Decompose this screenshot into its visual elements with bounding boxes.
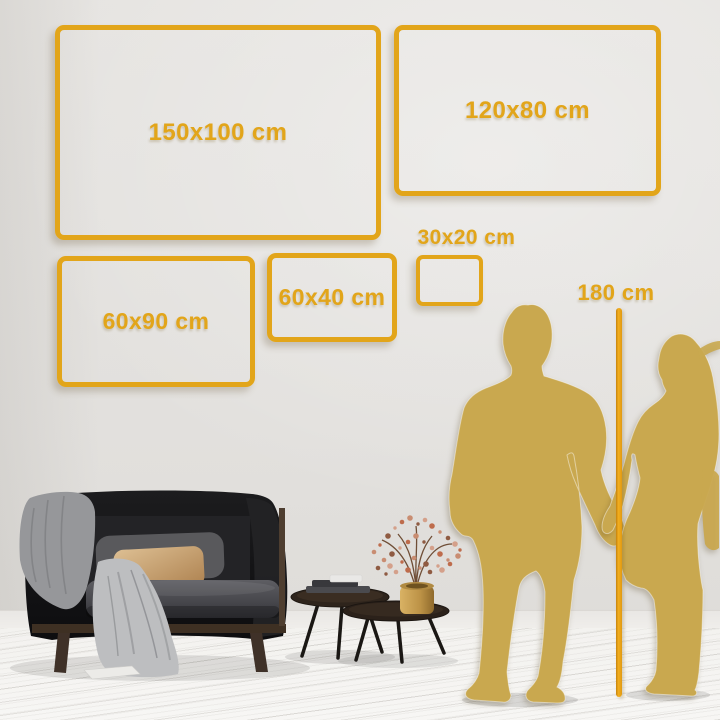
height-marker-label-wrap: 180 cm bbox=[560, 280, 672, 306]
size-frame-60x40: 60x40 cm bbox=[267, 253, 397, 342]
man-silhouette bbox=[449, 305, 625, 703]
size-label-60x90: 60x90 cm bbox=[103, 308, 210, 335]
size-frame-30x20 bbox=[416, 255, 483, 306]
height-marker-label: 180 cm bbox=[577, 280, 654, 305]
height-marker-line bbox=[616, 308, 622, 697]
size-label-30x20: 30x20 cm bbox=[418, 226, 516, 249]
size-frame-60x90: 60x90 cm bbox=[57, 256, 255, 387]
coffee-tables bbox=[291, 515, 462, 662]
books-stack bbox=[306, 575, 370, 593]
size-label-60x40: 60x40 cm bbox=[279, 284, 386, 311]
size-frame-120x80: 120x80 cm bbox=[394, 25, 661, 196]
size-frame-150x100: 150x100 cm bbox=[55, 25, 381, 240]
size-label-150x100: 150x100 cm bbox=[149, 119, 288, 147]
size-label-120x80: 120x80 cm bbox=[465, 97, 590, 125]
size-label-30x20-wrap: 30x20 cm bbox=[404, 226, 529, 250]
sofa bbox=[19, 490, 287, 679]
product-size-chart-image: { "size_labels": [ {"id": "150x100", "la… bbox=[0, 0, 720, 720]
